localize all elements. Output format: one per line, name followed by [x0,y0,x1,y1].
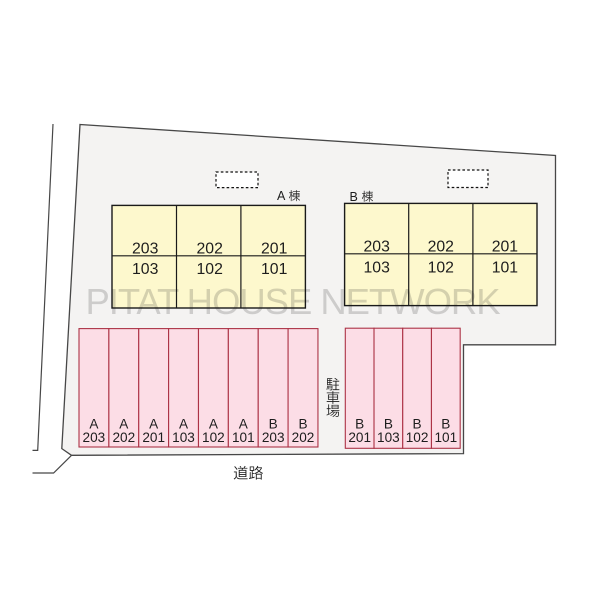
svg-text:103: 103 [132,261,159,278]
svg-text:203: 203 [132,240,159,257]
svg-text:103: 103 [377,430,400,445]
svg-text:A: A [277,189,286,203]
svg-text:102: 102 [428,259,454,276]
svg-text:101: 101 [434,430,457,445]
svg-text:101: 101 [232,430,255,445]
svg-text:103: 103 [364,259,391,276]
svg-text:101: 101 [261,261,288,278]
svg-text:103: 103 [172,430,195,445]
svg-text:102: 102 [202,430,225,445]
svg-text:203: 203 [262,430,285,445]
svg-text:202: 202 [292,430,315,445]
svg-text:203: 203 [364,239,391,256]
svg-text:102: 102 [406,430,429,445]
svg-text:101: 101 [492,259,519,276]
svg-text:201: 201 [492,239,519,256]
svg-text:PITAT HOUSE NETWORK: PITAT HOUSE NETWORK [86,281,501,322]
svg-text:203: 203 [83,430,106,445]
svg-text:102: 102 [197,261,223,278]
svg-text:B: B [350,190,358,204]
svg-text:201: 201 [261,240,288,257]
svg-text:202: 202 [197,240,223,257]
svg-text:202: 202 [112,430,135,445]
svg-text:202: 202 [428,239,454,256]
svg-text:201: 201 [142,430,165,445]
svg-text:201: 201 [348,430,371,445]
